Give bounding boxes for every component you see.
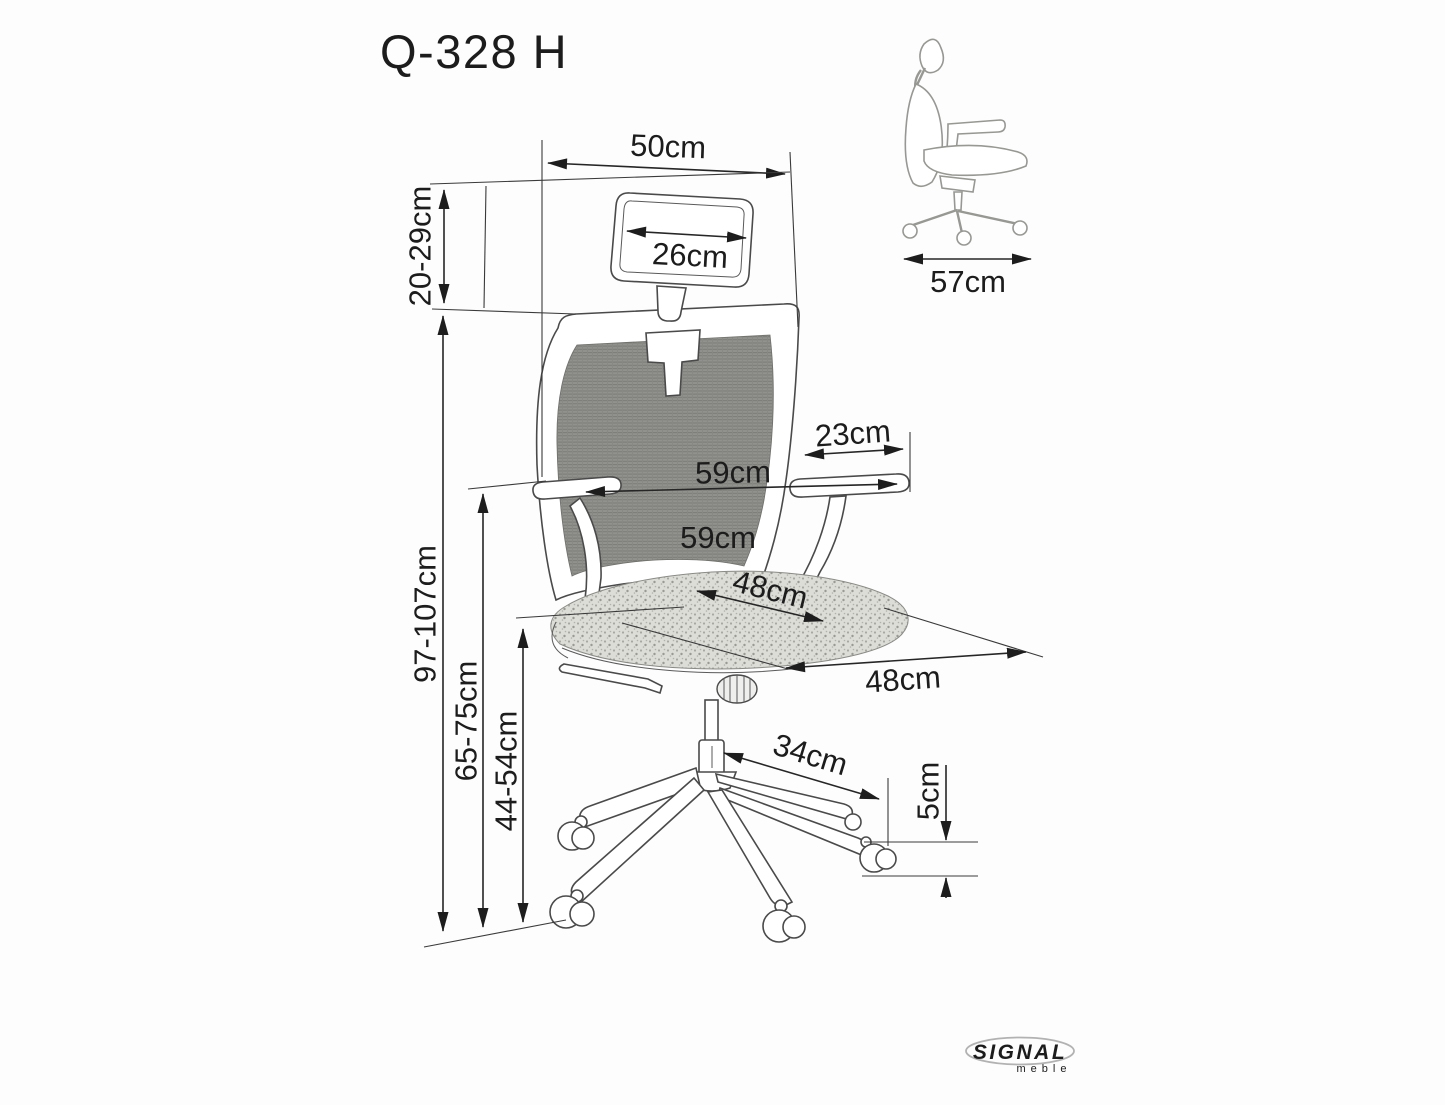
dim-armrest-pad-length-label: 23cm	[814, 413, 892, 453]
dim-overall-width-label: 59cm	[695, 454, 771, 490]
dim-side-depth: 57cm	[904, 259, 1031, 299]
dim-armrest-height-label: 65-75cm	[449, 661, 484, 782]
brand-logo: SIGNAL meble	[966, 1038, 1074, 1076]
floor-line	[424, 920, 566, 947]
dim-total-height-label: 97-107cm	[408, 545, 443, 683]
dimension-sheet: Q-328 H 57cm	[0, 0, 1445, 1105]
dim-headrest-height-adjust-label: 20-29cm	[403, 186, 438, 307]
dim-total-height: 97-107cm	[408, 316, 444, 931]
dim-side-depth-label: 57cm	[930, 264, 1006, 299]
dim-caster-height: 5cm	[862, 762, 978, 898]
front-view-chair	[424, 193, 909, 947]
dim-backrest-width-label: 59cm	[680, 520, 756, 555]
chair-dimension-diagram: Q-328 H 57cm	[0, 0, 1445, 1105]
dim-backrest-width: 59cm	[680, 520, 756, 555]
dim-seat-height-label: 44-54cm	[489, 711, 524, 832]
dim-headrest-pad-width-label: 26cm	[651, 236, 729, 275]
page-title: Q-328 H	[380, 25, 568, 78]
dim-headrest-outer-width-label: 50cm	[630, 128, 707, 166]
tilt-knob	[717, 675, 757, 703]
dim-base-leg-reach-label: 34cm	[769, 727, 852, 783]
side-view-chair	[903, 39, 1027, 245]
right-armrest-support	[799, 496, 846, 588]
logo-text: SIGNAL	[973, 1041, 1067, 1064]
logo-tagline: meble	[1017, 1063, 1072, 1075]
dim-caster-height-label: 5cm	[911, 762, 946, 821]
dim-seat-width-label: 48cm	[864, 659, 942, 699]
dim-armrest-height: 65-75cm	[449, 481, 547, 927]
